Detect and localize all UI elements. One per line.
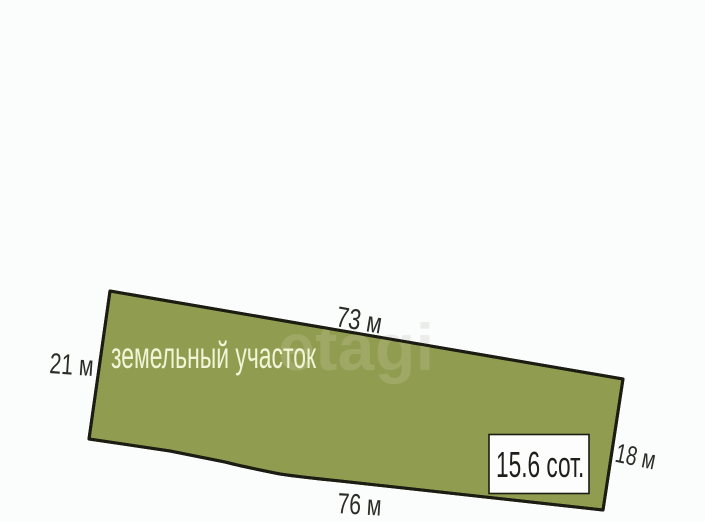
svg-text:76 м: 76 м [337,488,383,522]
svg-text:земельный участок: земельный участок [111,334,316,376]
svg-text:15.6 сот.: 15.6 сот. [496,446,584,485]
svg-text:21 м: 21 м [49,348,95,383]
